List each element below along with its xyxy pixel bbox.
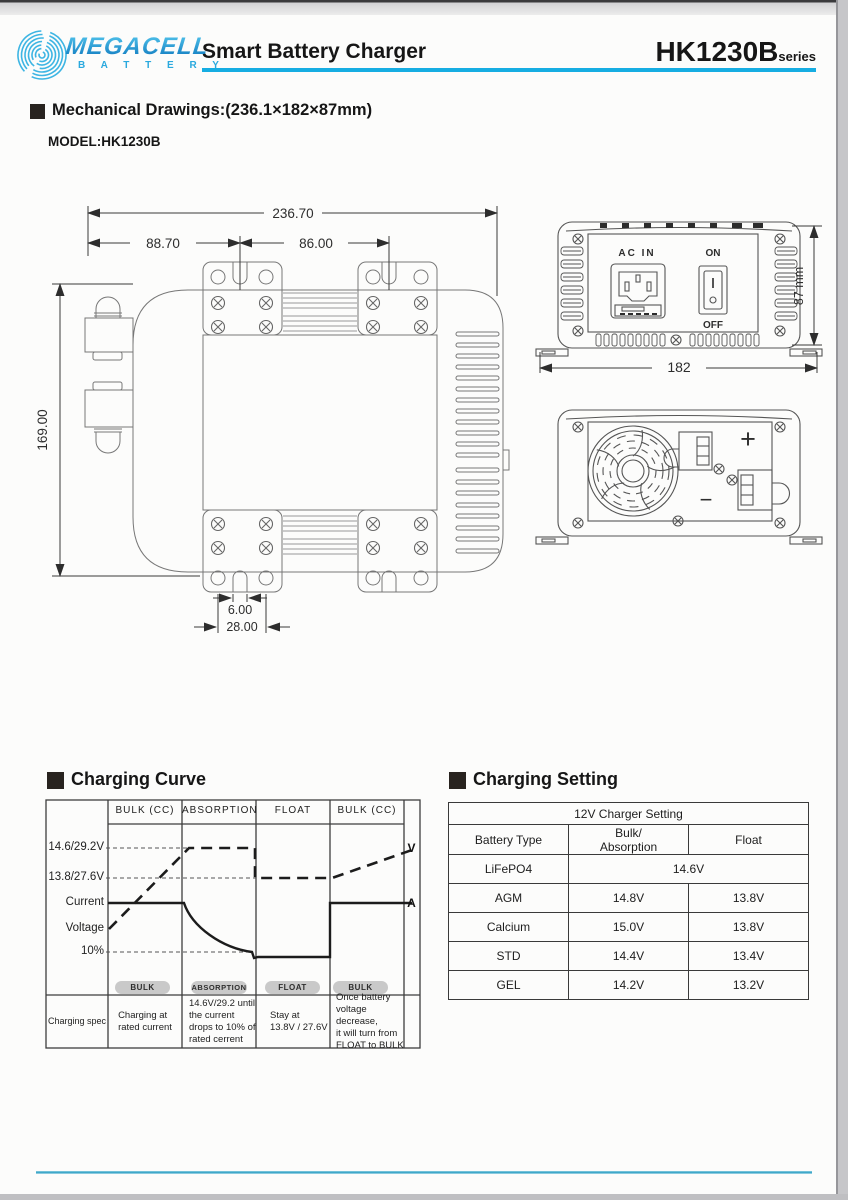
cell-float: 13.8V	[689, 913, 809, 942]
phase-header-absorption: ABSORPTION	[182, 805, 256, 821]
phase-header-bulk1: BULK (CC)	[108, 805, 182, 821]
current-axis-marker: A	[404, 896, 419, 910]
table-row: AGM 14.8V 13.8V	[449, 884, 809, 913]
spec-note-bulk: Charging at rated current	[108, 997, 182, 1047]
cell-bulk: 14.2V	[569, 971, 689, 1000]
pill-bulk1: BULK	[115, 981, 170, 994]
cell-bulk: 15.0V	[569, 913, 689, 942]
grid-lines	[106, 848, 256, 952]
photo-edge-right	[836, 0, 848, 1200]
y-label-absorption-voltage: 14.6/29.2V	[40, 841, 104, 853]
table-row: Calcium 15.0V 13.8V	[449, 913, 809, 942]
footer-accent-rule	[36, 1171, 812, 1174]
photo-edge-bottom	[0, 1194, 848, 1200]
spec-note-absorption: 14.6V/29.2 until the current drops to 10…	[183, 997, 261, 1047]
col-float: Float	[689, 825, 809, 855]
voltage-axis-marker: V	[404, 841, 419, 855]
col-bulk-absorption: Bulk/ Absorption	[569, 825, 689, 855]
y-label-current: Current	[40, 896, 104, 908]
phase-header-float: FLOAT	[256, 805, 330, 821]
table-row: STD 14.4V 13.4V	[449, 942, 809, 971]
cell-float: 13.4V	[689, 942, 809, 971]
cell-float: 13.8V	[689, 884, 809, 913]
datasheet-page: MEGACELL B A T T E R Y Smart Battery Cha…	[0, 0, 848, 1200]
charger-setting-table: 12V Charger Setting Battery Type Bulk/ A…	[448, 802, 809, 1000]
pill-absorption: ABSORPTION	[191, 981, 247, 994]
spec-row-header: Charging spec	[46, 997, 108, 1047]
cell-bulk: 14.4V	[569, 942, 689, 971]
col-battery-type: Battery Type	[449, 825, 569, 855]
table-row: GEL 14.2V 13.2V	[449, 971, 809, 1000]
photo-edge-top	[0, 0, 848, 15]
current-curve	[108, 903, 412, 958]
cell-battery-type: STD	[449, 942, 569, 971]
cell-bulk: 14.8V	[569, 884, 689, 913]
pill-float: FLOAT	[265, 981, 320, 994]
section-title-setting: Charging Setting	[473, 769, 618, 790]
y-label-float-voltage: 13.8/27.6V	[40, 871, 104, 883]
spec-note-bulk2: Once battery voltage decrease, it will t…	[330, 997, 410, 1047]
cell-battery-type: Calcium	[449, 913, 569, 942]
table-title-row: 12V Charger Setting	[449, 803, 809, 825]
phase-header-bulk2: BULK (CC)	[330, 805, 404, 821]
y-label-voltage: Voltage	[40, 922, 104, 934]
table-row: LiFePO4 14.6V	[449, 855, 809, 884]
cell-float: 13.2V	[689, 971, 809, 1000]
cell-battery-type: GEL	[449, 971, 569, 1000]
cell-battery-type: AGM	[449, 884, 569, 913]
table-title: 12V Charger Setting	[449, 803, 809, 825]
cell-battery-type: LiFePO4	[449, 855, 569, 884]
cell-merged-voltage: 14.6V	[569, 855, 809, 884]
section-bullet	[449, 772, 466, 789]
y-label-cutoff: 10%	[40, 945, 104, 957]
voltage-curve	[109, 848, 412, 929]
table-header-row: Battery Type Bulk/ Absorption Float	[449, 825, 809, 855]
